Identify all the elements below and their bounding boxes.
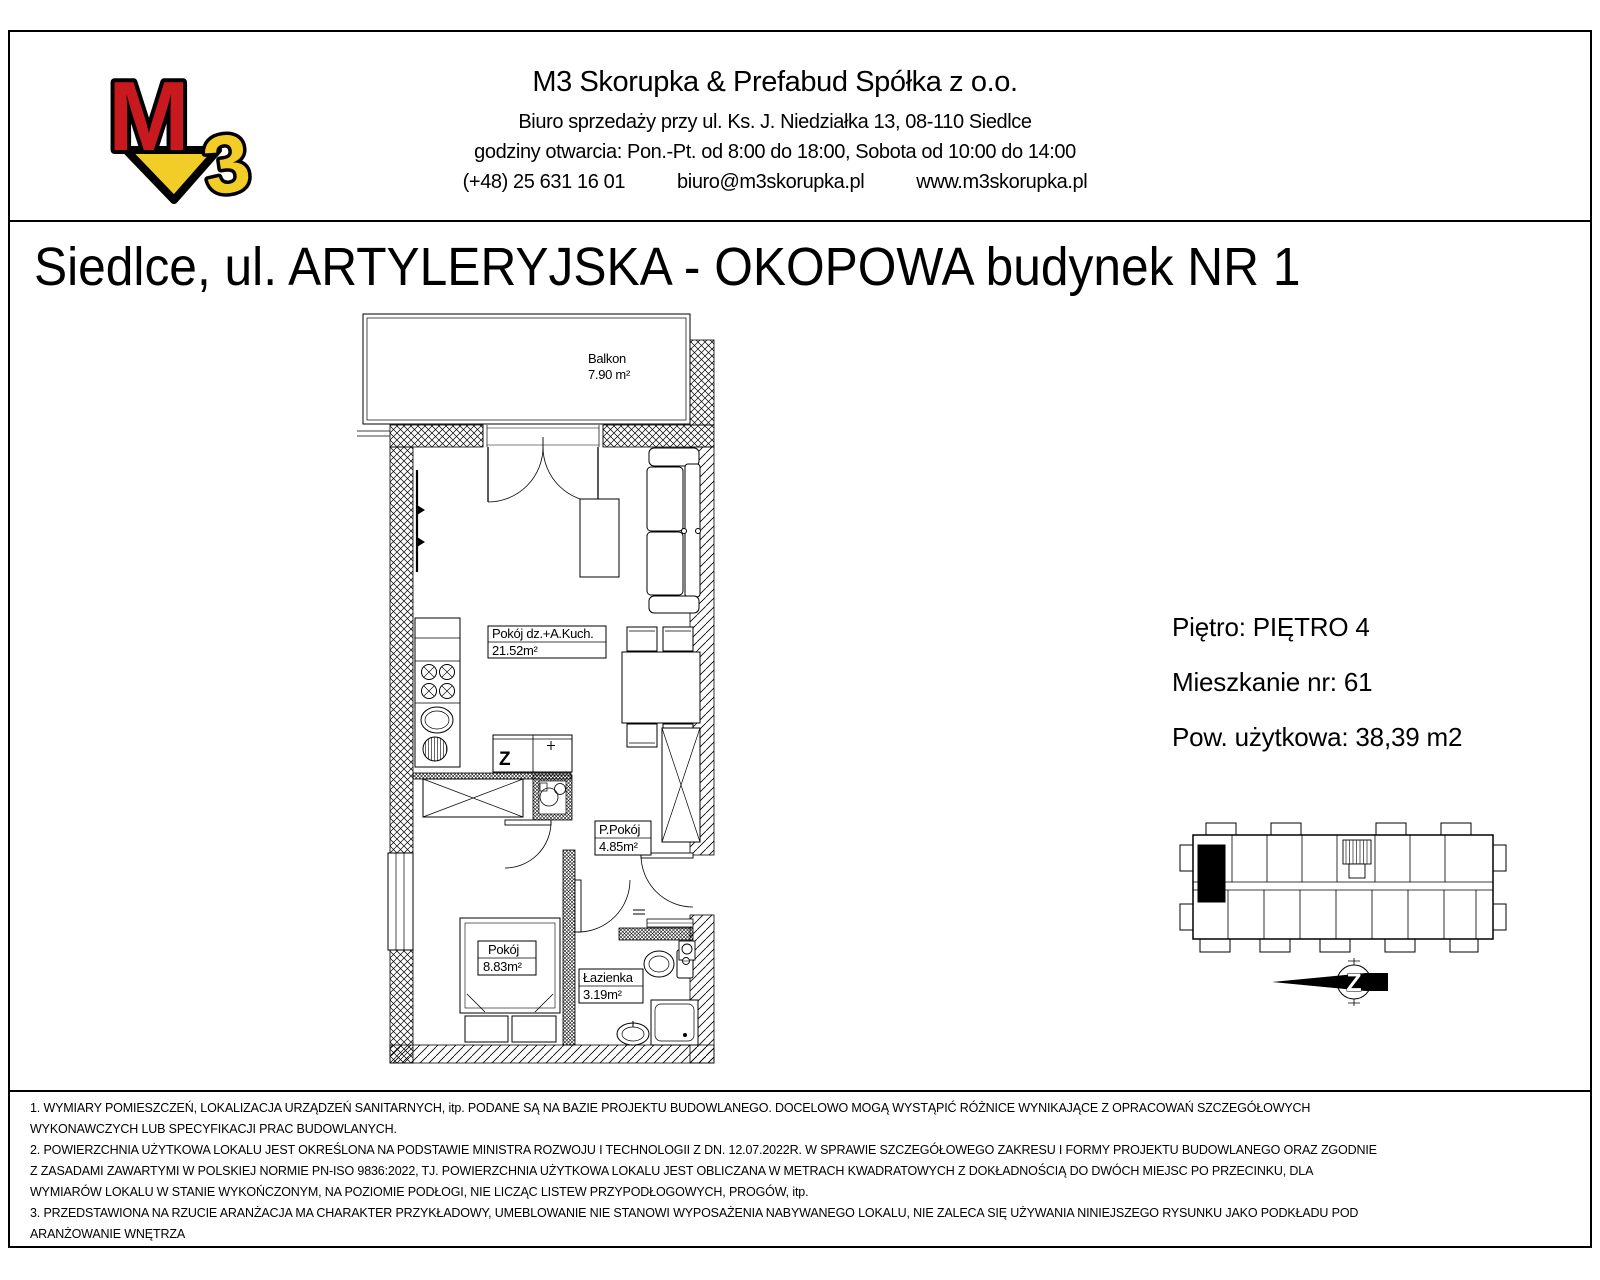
footnote-line: Z ZASADAMI ZAWARTYMI W POLSKIEJ NORMIE P… bbox=[30, 1161, 1560, 1182]
hall-label: P.Pokój 4.85m² bbox=[595, 821, 651, 855]
bathroom-door bbox=[575, 880, 630, 932]
highlighted-unit bbox=[1198, 845, 1225, 902]
living-room-area: 21.52m² bbox=[492, 643, 539, 658]
hall-area: 4.85m² bbox=[599, 839, 639, 854]
washer-nook bbox=[533, 775, 572, 820]
usable-area: Pow. użytkowa: 38,39 m2 bbox=[1172, 722, 1462, 777]
bedroom-window bbox=[388, 853, 413, 950]
dishwasher-letter: Z bbox=[499, 749, 511, 770]
footnote-line: 2. POWIERZCHNIA UŻYTKOWA LOKALU JEST OKR… bbox=[30, 1140, 1560, 1161]
balcony: Balkon 7.90 m² bbox=[363, 314, 690, 424]
website-url: www.m3skorupka.pl bbox=[916, 171, 1087, 194]
compass: Z bbox=[1272, 958, 1388, 1006]
apartment-info: Piętro: PIĘTRO 4 Mieszkanie nr: 61 Pow. … bbox=[1172, 612, 1462, 777]
washbasin bbox=[617, 1021, 649, 1045]
bed bbox=[460, 918, 560, 1042]
building-outline bbox=[1180, 823, 1506, 952]
bathroom-name: Łazienka bbox=[583, 970, 634, 985]
footnote-line: WYMIARÓW LOKALU W STANIE WYKOŃCZONYM, NA… bbox=[30, 1182, 1560, 1203]
svg-text:M: M bbox=[108, 61, 190, 171]
m3-logo-icon: M 3 bbox=[108, 61, 256, 213]
balcony-area: 7.90 m² bbox=[588, 367, 631, 382]
sofa bbox=[647, 448, 701, 613]
header-box: M 3 M3 Skorupka & Prefabud Spółka z o.o.… bbox=[8, 30, 1592, 222]
apartment-number: Mieszkanie nr: 61 bbox=[1172, 667, 1462, 722]
tv-cabinet bbox=[580, 499, 619, 577]
contact-row: (+48) 25 631 16 01 biuro@m3skorupka.pl w… bbox=[430, 171, 1120, 194]
bedroom-name: Pokój bbox=[488, 942, 519, 957]
building-overview: Z bbox=[1160, 812, 1550, 1017]
company-address: Biuro sprzedaży przy ul. Ks. J. Niedział… bbox=[430, 111, 1120, 134]
floor-info: Piętro: PIĘTRO 4 bbox=[1172, 612, 1462, 667]
footnotes: 1. WYMIARY POMIESZCZEŃ, LOKALIZACJA URZĄ… bbox=[30, 1098, 1560, 1245]
wardrobe-right bbox=[662, 728, 700, 842]
bedroom-door bbox=[505, 820, 551, 868]
compass-west-letter: Z bbox=[1346, 969, 1361, 997]
balcony-name: Balkon bbox=[588, 351, 626, 366]
svg-text:3: 3 bbox=[198, 116, 256, 212]
balcony-door bbox=[483, 425, 603, 502]
bathroom-label: Łazienka 3.19m² bbox=[579, 969, 643, 1003]
building-overview-drawing: Z bbox=[1160, 812, 1550, 1012]
page-title: Siedlce, ul. ARTYLERYJSKA - OKOPOWA budy… bbox=[34, 236, 1300, 298]
bedroom-area: 8.83m² bbox=[483, 959, 523, 974]
bedroom-label: Pokój 8.83m² bbox=[478, 941, 536, 975]
footnote-line: 1. WYMIARY POMIESZCZEŃ, LOKALIZACJA URZĄ… bbox=[30, 1098, 1560, 1119]
entrance-door bbox=[633, 853, 693, 927]
bathroom-area: 3.19m² bbox=[583, 987, 623, 1002]
company-logo: M 3 bbox=[98, 50, 283, 215]
hall-name: P.Pokój bbox=[599, 822, 640, 837]
footnote-line: 3. PRZEDSTAWIONA NA RZUCIE ARANŻACJA MA … bbox=[30, 1203, 1560, 1224]
footnote-line: WYKONAWCZYCH LUB SPECYFIKACJI PRAC BUDOW… bbox=[30, 1119, 1560, 1140]
shower bbox=[651, 1000, 698, 1045]
living-room-name: Pokój dz.+A.Kuch. bbox=[492, 626, 594, 641]
floor-plan: Balkon 7.90 m² bbox=[355, 300, 735, 1070]
footnote-line: ARANŻOWANIE WNĘTRZA bbox=[30, 1224, 1560, 1245]
email-address: biuro@m3skorupka.pl bbox=[677, 171, 864, 194]
company-name: M3 Skorupka & Prefabud Spółka z o.o. bbox=[430, 66, 1120, 99]
opening-hours: godziny otwarcia: Pon.-Pt. od 8:00 do 18… bbox=[430, 141, 1120, 164]
header-text: M3 Skorupka & Prefabud Spółka z o.o. Biu… bbox=[430, 66, 1120, 194]
tv-on-wall bbox=[417, 470, 425, 572]
living-room-label: Pokój dz.+A.Kuch. 21.52m² bbox=[488, 626, 606, 658]
flyer-page: M 3 M3 Skorupka & Prefabud Spółka z o.o.… bbox=[0, 0, 1600, 1280]
wardrobe-hall bbox=[423, 779, 523, 817]
phone-number: (+48) 25 631 16 01 bbox=[463, 171, 625, 194]
floor-plan-drawing: Balkon 7.90 m² bbox=[355, 300, 735, 1065]
